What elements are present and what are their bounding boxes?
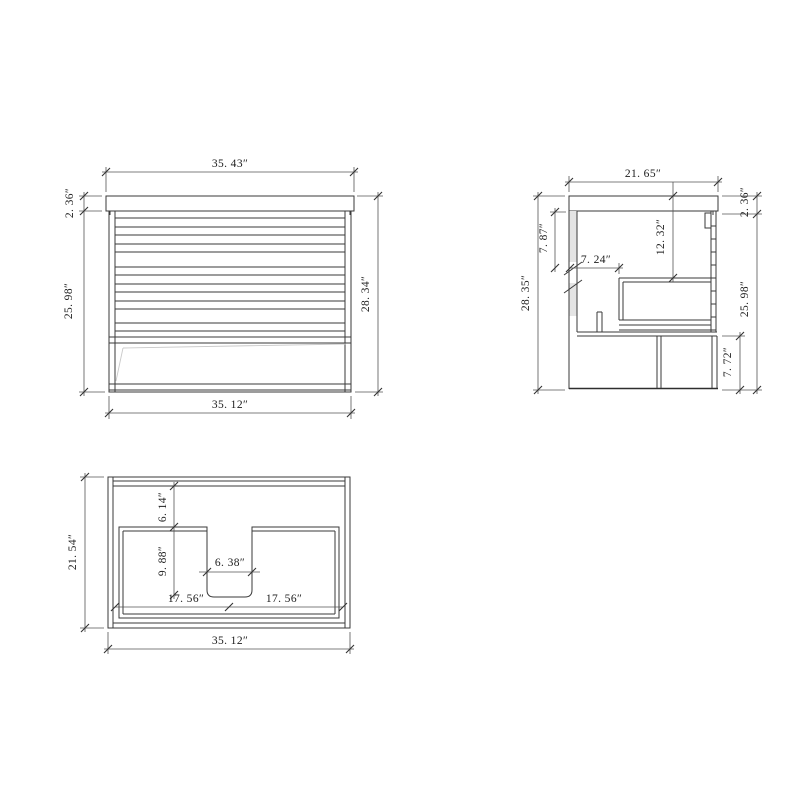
- front-dim-right-total-label: 28. 34″: [360, 276, 372, 312]
- front-drawer-panel-outline: [116, 344, 346, 381]
- top-dim-inner-offset-label: 6. 14″: [157, 492, 169, 522]
- front-countertop: [106, 196, 354, 211]
- side-dim-left-upper-lines: [550, 208, 566, 272]
- side-dim-right-bottom-label: 7. 72″: [722, 347, 734, 377]
- front-countertop-lip: [110, 211, 350, 215]
- side-dim-left-total-lines: [533, 192, 565, 394]
- top-drawer-box-inner-lines: [123, 531, 335, 614]
- side-front-strip-slat-ticks: [711, 226, 716, 330]
- side-dim-inner-height-label: 12. 32″: [655, 219, 667, 255]
- front-dim-left-lines: [79, 192, 105, 396]
- dimension-drawing: 35. 43″ 2. 36″ 25. 98″ 28. 34″ 35. 12″: [0, 0, 800, 800]
- side-dim-top-depth-label: 21. 65″: [625, 168, 661, 180]
- top-dim-left-depth-label: 21. 54″: [67, 534, 79, 570]
- side-dim-left-total-label: 28. 35″: [520, 275, 532, 311]
- front-slat-lines: [115, 218, 345, 331]
- side-dim-right-body-label: 25. 98″: [739, 281, 751, 317]
- front-dim-top-lines: [102, 167, 358, 192]
- side-lower-divider-and-front: [657, 336, 717, 388]
- side-dim-inner-depth-label: 7. 24″: [581, 254, 611, 266]
- front-bottom-rail: [109, 384, 351, 390]
- top-drawer-box-outline: [119, 527, 339, 618]
- top-dim-right-half-label: 17. 56″: [266, 593, 302, 605]
- side-back-wall-upper: [569, 211, 577, 262]
- top-dim-left-half-label: 17. 56″: [168, 593, 204, 605]
- front-dim-bottom-width-label: 35. 12″: [212, 399, 248, 411]
- top-dim-left-lines: [80, 473, 104, 632]
- blueprint-sheet: 35. 43″ 2. 36″ 25. 98″ 28. 34″ 35. 12″: [0, 0, 800, 800]
- top-outer-rect: [108, 477, 350, 628]
- side-view: 21. 65″ 28. 35″ 7. 87″ 7. 24″ 12. 32″ 2.…: [520, 168, 762, 394]
- front-view: 35. 43″ 2. 36″ 25. 98″ 28. 34″ 35. 12″: [63, 158, 383, 419]
- side-front-strip: [711, 211, 716, 332]
- side-drawer-box: [619, 278, 711, 330]
- side-bottom-band: [577, 332, 717, 336]
- front-dim-left-top-label: 2. 36″: [64, 188, 76, 218]
- side-dim-left-upper-label: 7. 87″: [538, 223, 550, 253]
- top-dim-bottom-width-label: 35. 12″: [212, 635, 248, 647]
- front-dim-left-body-label: 25. 98″: [63, 283, 75, 319]
- side-front-top-cleat: [705, 213, 711, 228]
- side-countertop: [569, 196, 718, 211]
- side-bracket: [597, 312, 602, 332]
- side-dim-right-top-label: 2. 36″: [739, 187, 751, 217]
- front-middle-rail: [109, 337, 351, 343]
- front-dim-top-width-label: 35. 43″: [212, 158, 248, 170]
- top-view: 21. 54″ 6. 14″ 9. 88″ 6. 38″ 17. 56″ 17.…: [67, 473, 354, 654]
- top-wall-lines: [113, 477, 345, 628]
- top-dim-notch-depth-label: 9. 88″: [157, 546, 169, 576]
- top-dim-notch-width-label: 6. 38″: [215, 557, 245, 569]
